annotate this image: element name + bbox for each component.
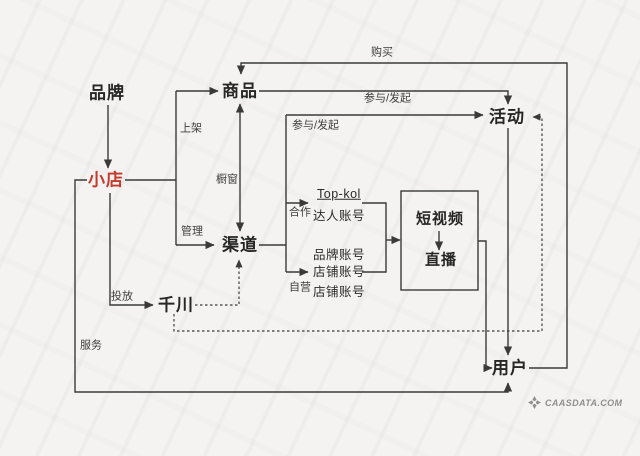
label-showcase: 橱窗: [216, 175, 238, 186]
label-cooperation: 合作: [289, 208, 311, 219]
node-user: 用户: [492, 360, 528, 377]
account-shop-2: 店铺账号: [313, 286, 365, 299]
label-listing: 上架: [180, 124, 202, 135]
edge-shop-invest-qianchuan: [110, 193, 153, 305]
branding-watermark: CAASDATA.COM: [528, 396, 622, 409]
branding-watermark-text: CAASDATA.COM: [545, 398, 622, 408]
label-participate-top: 参与/发起: [364, 94, 411, 105]
node-shop: 小店: [88, 172, 124, 189]
edge-qianchuan-to-activity-dotted: [174, 117, 542, 331]
node-short-video: 短视频: [416, 212, 464, 227]
diagram-connectors: [0, 0, 640, 456]
node-qianchuan: 千川: [158, 297, 194, 314]
account-brand: 品牌账号: [313, 249, 365, 262]
label-invest: 投放: [111, 292, 133, 303]
node-live: 直播: [425, 253, 457, 268]
label-manage: 管理: [181, 227, 203, 238]
edge-accounts-bracket: [362, 203, 386, 272]
node-product: 商品: [222, 83, 258, 100]
label-buy: 购买: [371, 48, 393, 59]
account-shop-1: 店铺账号: [313, 266, 365, 279]
edge-qianchuan-to-channel-dotted: [195, 260, 239, 305]
node-brand: 品牌: [89, 85, 125, 102]
label-self-operated: 自营: [289, 283, 311, 294]
label-participate-left: 参与/发起: [292, 121, 339, 132]
edge-content-to-user: [478, 241, 492, 368]
account-influencer: 达人账号: [313, 210, 365, 223]
caasdata-logo-icon: [528, 396, 541, 409]
node-channel: 渠道: [222, 237, 258, 254]
label-service: 服务: [80, 341, 102, 352]
node-activity: 活动: [489, 109, 525, 126]
flow-diagram: 品牌 小店 商品 渠道 千川 活动 用户 短视频 直播 Top-kol 达人账号…: [0, 0, 640, 456]
account-top-kol: Top-kol: [317, 188, 361, 201]
